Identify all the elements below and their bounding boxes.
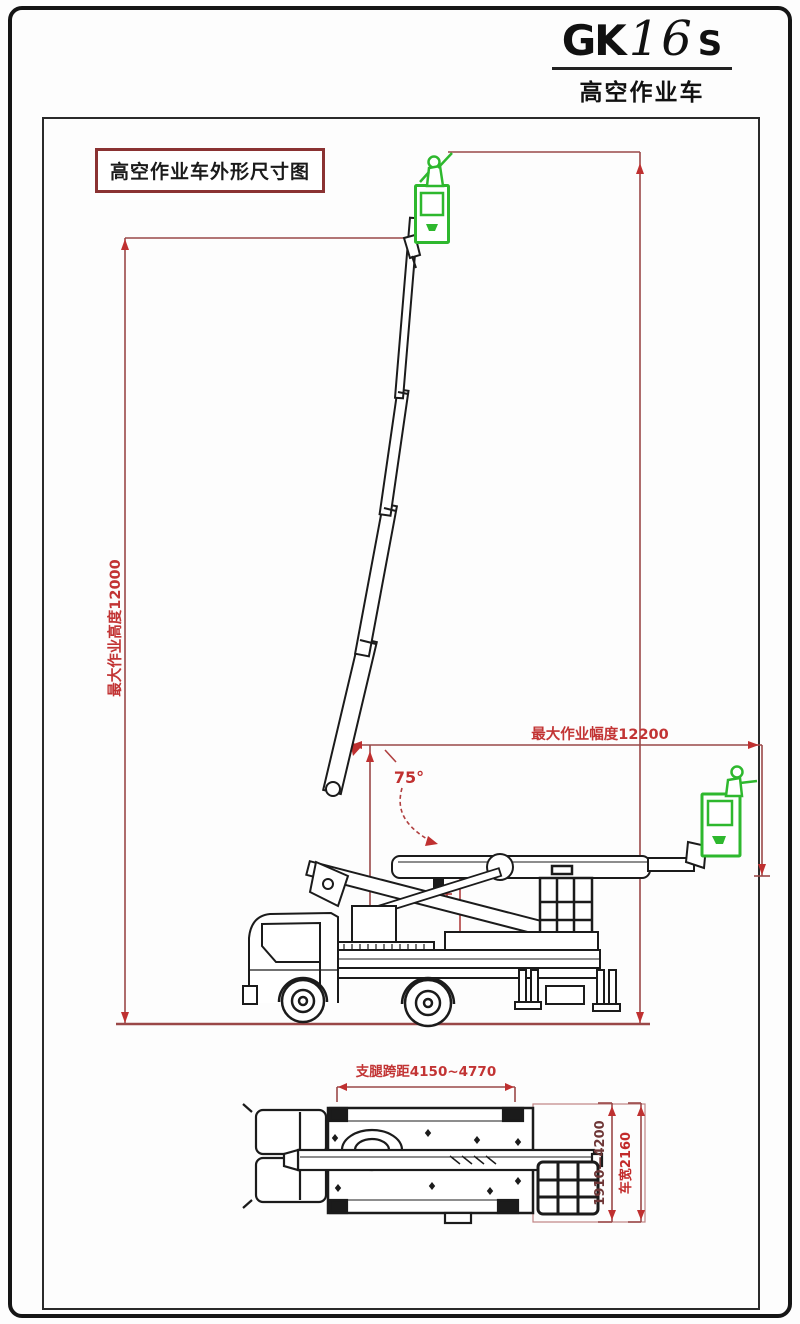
raised-basket xyxy=(416,153,453,243)
max-radius-label: 最大作业幅度12200 xyxy=(531,725,668,743)
outrigger-longitudinal-label: 支腿跨距4150~4770 xyxy=(355,1063,496,1080)
blueprint-page: GK 16 S 高空作业车 高空作业车外形尺寸图 xyxy=(0,0,800,1324)
outrigger-lateral-label: 1910—4200 xyxy=(593,1120,608,1205)
technical-drawing-canvas: 最大作业高度12000 最大作业幅度12200 75° 支腿跨距4150~477… xyxy=(0,0,800,1324)
plan-basket xyxy=(538,1162,598,1214)
stowed-basket xyxy=(540,866,592,940)
raised-boom xyxy=(323,218,420,796)
top-view-truck xyxy=(243,1104,602,1223)
dimension-arrowheads xyxy=(121,163,766,1220)
vehicle-width-label: 车宽2160 xyxy=(618,1132,634,1194)
operator-figure xyxy=(420,153,452,186)
aerial-baskets xyxy=(416,153,758,856)
boom-angle-label: 75° xyxy=(394,768,424,787)
max-height-label: 最大作业高度12000 xyxy=(106,559,124,696)
operator-figure xyxy=(726,767,757,797)
outreach-basket xyxy=(702,767,757,857)
dimension-lines xyxy=(116,152,770,1222)
side-view-truck xyxy=(243,218,706,1026)
wheels xyxy=(279,978,454,1026)
